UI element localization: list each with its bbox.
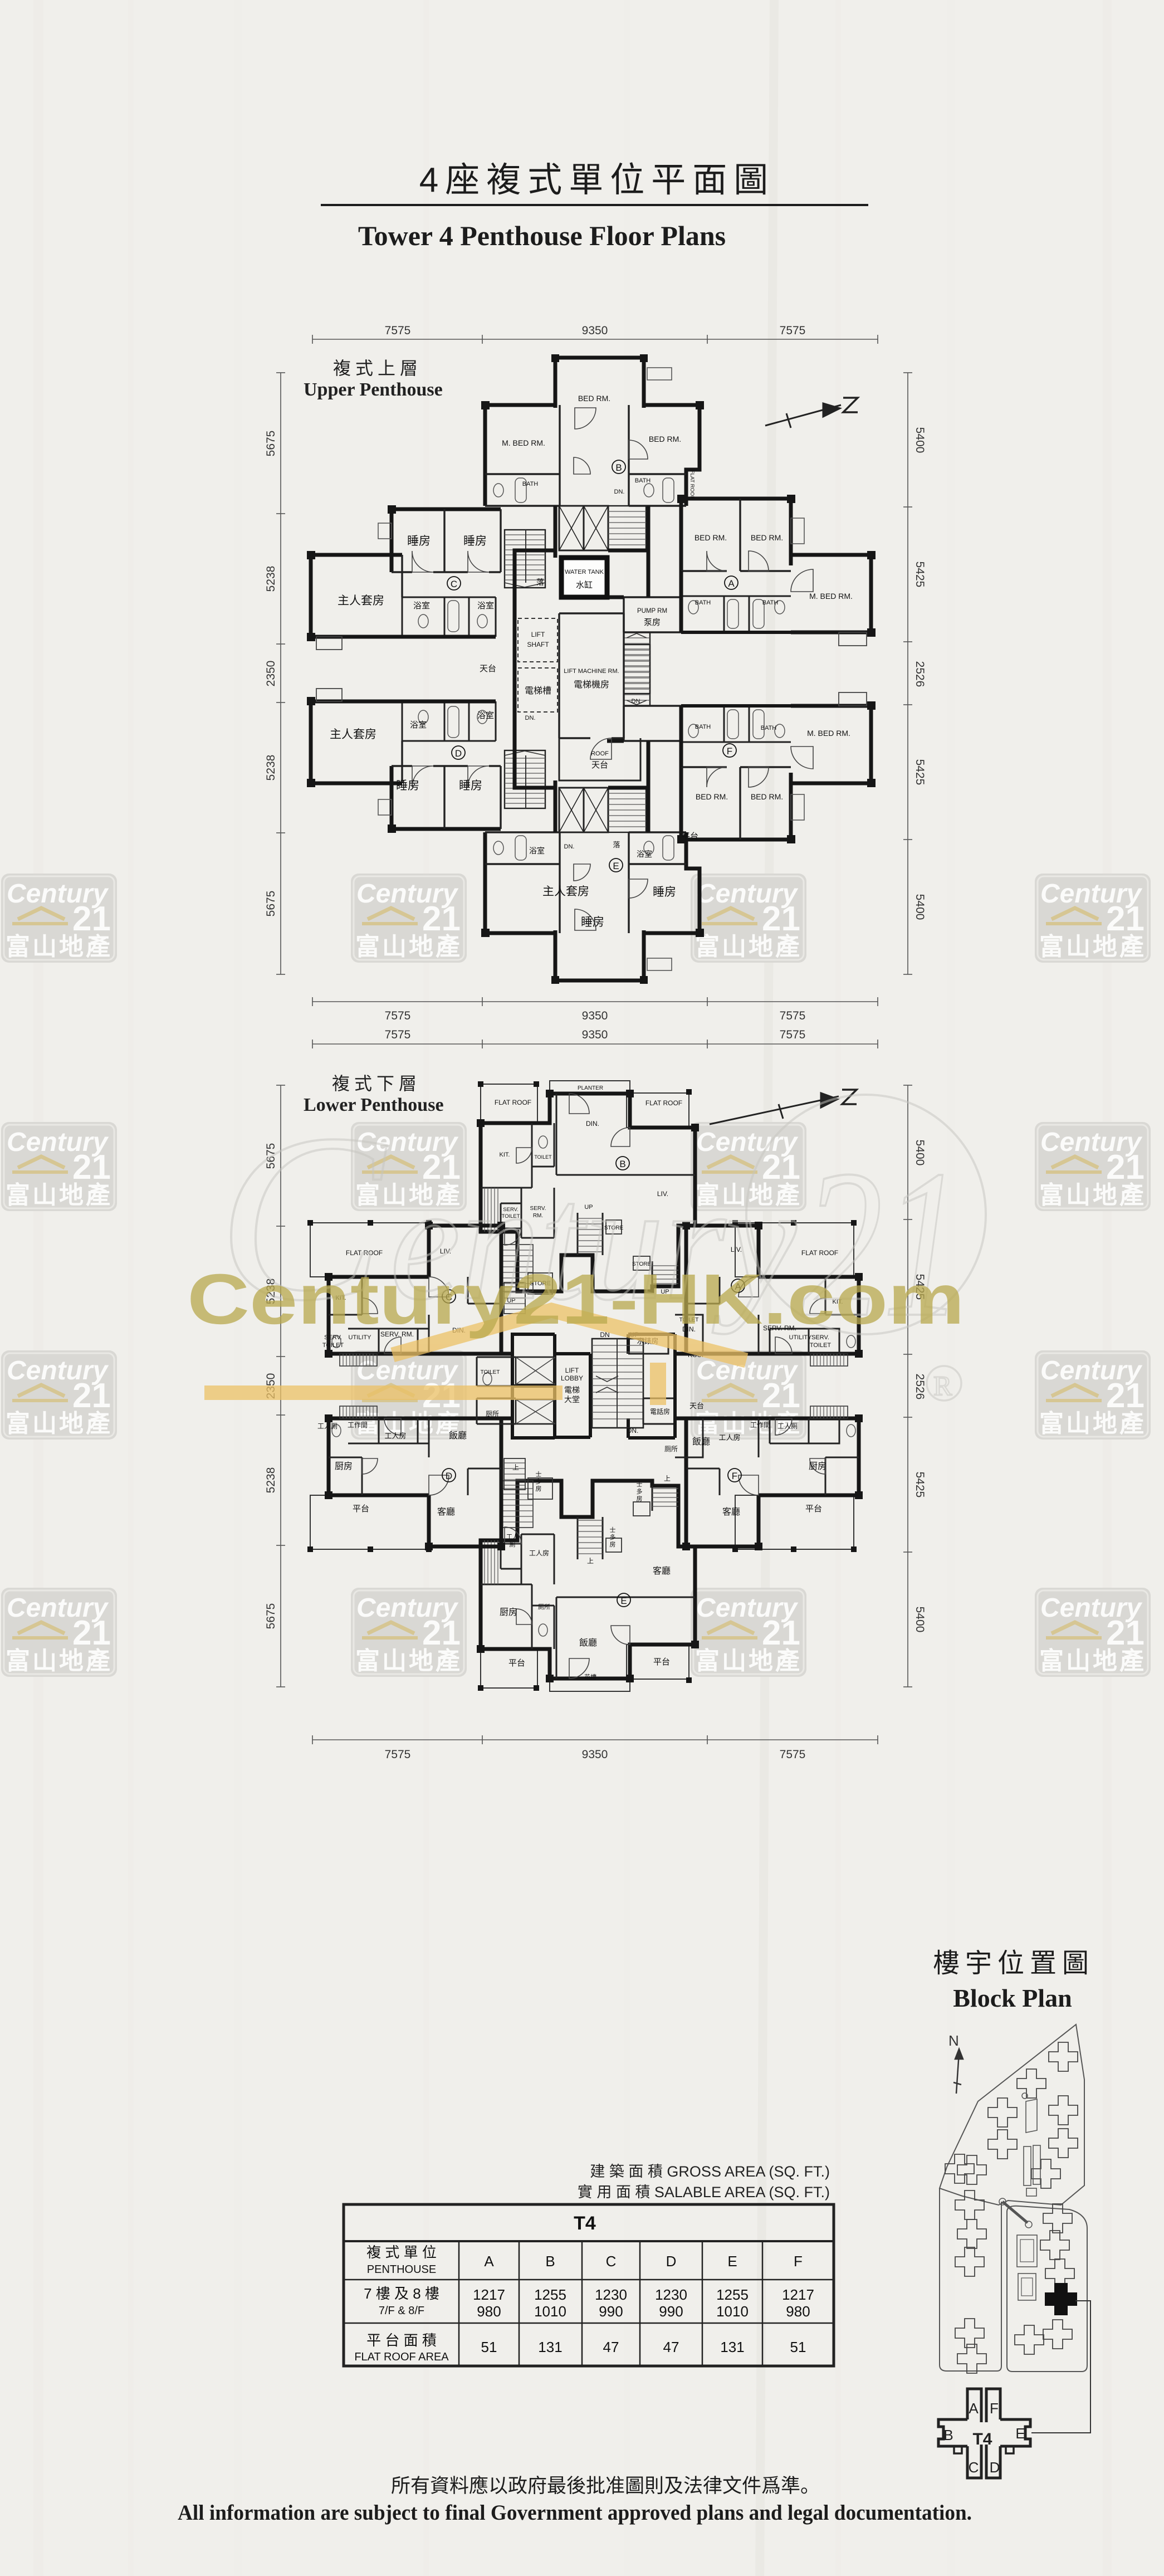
svg-text:FLAT ROOF AREA: FLAT ROOF AREA [354, 2351, 449, 2363]
svg-text:房: 房 [637, 1495, 643, 1502]
svg-text:1010: 1010 [716, 2303, 749, 2320]
svg-text:F: F [794, 2253, 803, 2270]
svg-text:實 用 面 積 SALABLE AREA (SQ. FT.: 實 用 面 積 SALABLE AREA (SQ. FT.) [578, 2184, 830, 2201]
svg-text:浴室: 浴室 [637, 850, 652, 858]
svg-text:BED RM.: BED RM. [696, 792, 728, 801]
svg-text:7575: 7575 [780, 1009, 806, 1022]
svg-text:E: E [1015, 2425, 1025, 2442]
svg-text:工人房: 工人房 [529, 1549, 549, 1557]
svg-text:Century21-HK.com: Century21-HK.com [187, 1260, 965, 1339]
svg-text:厨所: 厨所 [486, 1410, 499, 1418]
svg-text:7575: 7575 [780, 1028, 806, 1041]
svg-text:泵房: 泵房 [644, 618, 661, 627]
svg-text:Upper Penthouse: Upper Penthouse [304, 379, 443, 400]
svg-text:9350: 9350 [582, 1748, 608, 1761]
svg-text:Tower 4 Penthouse Floor Plans: Tower 4 Penthouse Floor Plans [358, 220, 726, 251]
svg-text:2526: 2526 [913, 1374, 926, 1400]
svg-text:F: F [990, 2400, 999, 2417]
svg-text:7575: 7575 [385, 324, 411, 337]
svg-text:飯廳: 飯廳 [579, 1637, 597, 1648]
svg-text:房: 房 [536, 1485, 542, 1492]
svg-text:平台: 平台 [353, 1504, 369, 1514]
svg-text:所有資料應以政府最後批准圖則及法律文件爲準。: 所有資料應以政府最後批准圖則及法律文件爲準。 [391, 2475, 820, 2497]
svg-text:47: 47 [603, 2339, 619, 2355]
svg-text:7575: 7575 [385, 1009, 411, 1022]
svg-text:電梯機房: 電梯機房 [574, 680, 609, 690]
svg-text:E: E [613, 861, 619, 871]
svg-text:大堂: 大堂 [564, 1395, 580, 1404]
svg-text:ROOF: ROOF [591, 750, 609, 757]
svg-text:天台: 天台 [591, 760, 608, 770]
svg-text:DN.: DN. [525, 715, 536, 721]
svg-text:浴室: 浴室 [413, 601, 430, 611]
svg-text:浴室: 浴室 [477, 601, 494, 611]
svg-text:多: 多 [637, 1487, 643, 1495]
svg-text:5238: 5238 [265, 566, 277, 592]
svg-text:FLAT ROOF: FLAT ROOF [645, 1099, 682, 1107]
svg-text:平台: 平台 [508, 1658, 525, 1668]
svg-text:990: 990 [599, 2303, 623, 2320]
svg-text:5400: 5400 [913, 894, 926, 920]
svg-text:上: 上 [664, 1475, 671, 1482]
svg-text:厨房: 厨房 [809, 1461, 826, 1471]
svg-text:C: C [969, 2459, 979, 2476]
svg-text:PENTHOUSE: PENTHOUSE [367, 2263, 436, 2276]
svg-text:複 式 單 位: 複 式 單 位 [366, 2244, 437, 2261]
svg-text:BED RM.: BED RM. [578, 394, 610, 403]
svg-text:7 樓 及 8 樓: 7 樓 及 8 樓 [364, 2285, 439, 2302]
svg-text:7575: 7575 [780, 324, 806, 337]
svg-text:工作間: 工作間 [348, 1421, 368, 1429]
svg-text:FLAT ROOF: FLAT ROOF [495, 1099, 531, 1106]
svg-text:BATH: BATH [635, 477, 651, 484]
svg-text:2350: 2350 [265, 661, 277, 687]
svg-text:客廳: 客廳 [653, 1565, 671, 1576]
svg-text:複式上層: 複式上層 [333, 358, 422, 378]
svg-text:落: 落 [536, 578, 544, 587]
svg-text:厨房: 厨房 [500, 1607, 517, 1617]
svg-text:D: D [666, 2253, 677, 2270]
svg-text:WATER TANK: WATER TANK [565, 569, 604, 575]
svg-text:E: E [727, 2253, 737, 2270]
svg-text:2526: 2526 [913, 661, 926, 687]
svg-text:1255: 1255 [534, 2286, 566, 2303]
svg-text:131: 131 [720, 2339, 744, 2355]
svg-text:天台: 天台 [689, 1402, 704, 1410]
svg-text:落: 落 [613, 841, 620, 849]
svg-text:5425: 5425 [913, 759, 926, 786]
svg-text:D: D [990, 2459, 1000, 2476]
svg-text:7/F & 8/F: 7/F & 8/F [379, 2305, 424, 2317]
svg-text:DIN.: DIN. [586, 1120, 599, 1128]
svg-text:客廳: 客廳 [437, 1506, 455, 1517]
svg-text:工人房: 工人房 [384, 1432, 406, 1440]
svg-text:睡房: 睡房 [407, 535, 431, 548]
svg-text:PLANTER: PLANTER [578, 1085, 603, 1091]
svg-text:電話房: 電話房 [650, 1407, 670, 1416]
svg-text:M. BED RM.: M. BED RM. [809, 592, 853, 601]
svg-text:M. BED RM.: M. BED RM. [807, 729, 850, 738]
svg-text:51: 51 [481, 2339, 497, 2355]
svg-text:水缸: 水缸 [576, 580, 593, 590]
svg-text:士: 士 [536, 1471, 542, 1478]
svg-text:睡房: 睡房 [463, 535, 487, 548]
svg-text:T4: T4 [574, 2213, 596, 2234]
svg-text:C: C [451, 579, 457, 589]
svg-text:9350: 9350 [582, 1009, 608, 1022]
svg-text:平台: 平台 [805, 1504, 822, 1514]
svg-text:5425: 5425 [913, 1472, 926, 1498]
svg-text:主人套房: 主人套房 [542, 885, 589, 898]
svg-text:DN.: DN. [627, 1427, 639, 1435]
svg-text:SHAFT: SHAFT [527, 641, 549, 648]
svg-text:5238: 5238 [265, 1467, 277, 1494]
svg-text:5400: 5400 [913, 427, 926, 453]
svg-text:9350: 9350 [582, 1028, 608, 1041]
svg-text:樓宇位置圖: 樓宇位置圖 [933, 1949, 1094, 1978]
svg-text:5425: 5425 [913, 562, 926, 588]
svg-text:浴室: 浴室 [529, 846, 545, 855]
svg-text:5675: 5675 [265, 1603, 277, 1629]
svg-text:T4: T4 [972, 2430, 992, 2448]
svg-text:F: F [727, 746, 732, 757]
svg-text:建 築 面 積 GROSS AREA (SQ. FT.): 建 築 面 積 GROSS AREA (SQ. FT.) [590, 2163, 830, 2180]
svg-text:睡房: 睡房 [459, 779, 482, 792]
svg-text:LIFT MACHINE RM.: LIFT MACHINE RM. [564, 668, 619, 675]
svg-text:4座複式單位平面圖: 4座複式單位平面圖 [419, 161, 775, 199]
svg-text:多: 多 [610, 1533, 616, 1541]
svg-text:工人房: 工人房 [718, 1433, 740, 1442]
svg-text:990: 990 [659, 2303, 683, 2320]
svg-text:1255: 1255 [716, 2286, 749, 2303]
svg-text:47: 47 [663, 2339, 679, 2355]
svg-text:BATH: BATH [695, 724, 711, 730]
svg-text:A: A [728, 578, 735, 589]
svg-text:工人厠: 工人厠 [317, 1422, 338, 1430]
svg-text:5675: 5675 [265, 431, 277, 457]
svg-text:士: 士 [637, 1481, 643, 1488]
svg-text:浴室: 浴室 [477, 711, 494, 720]
svg-text:BED RM.: BED RM. [751, 792, 783, 801]
svg-text:B: B [615, 462, 622, 473]
svg-text:睡房: 睡房 [653, 886, 676, 899]
svg-text:B: B [943, 2427, 953, 2443]
svg-text:電梯: 電梯 [564, 1385, 580, 1394]
svg-text:BATH: BATH [522, 481, 539, 487]
svg-text:5238: 5238 [265, 755, 277, 781]
svg-text:工人厠: 工人厠 [777, 1422, 798, 1430]
svg-text:PUMP RM: PUMP RM [637, 608, 667, 614]
svg-text:Block Plan: Block Plan [953, 1984, 1072, 2012]
svg-text:D: D [446, 1471, 452, 1481]
svg-text:BATH: BATH [762, 599, 779, 606]
svg-text:平台: 平台 [682, 832, 698, 841]
svg-text:天台: 天台 [480, 664, 496, 674]
svg-text:DN.: DN. [632, 698, 642, 705]
svg-text:花槽: 花槽 [584, 1674, 596, 1681]
svg-text:浴室: 浴室 [410, 720, 427, 730]
svg-text:BATH: BATH [695, 599, 711, 606]
svg-text:7575: 7575 [780, 1748, 806, 1761]
svg-text:A: A [969, 2400, 979, 2417]
svg-text:工作間: 工作間 [750, 1421, 770, 1429]
svg-text:R: R [933, 1370, 952, 1401]
svg-text:1230: 1230 [655, 2286, 687, 2303]
svg-text:主人套房: 主人套房 [330, 728, 376, 741]
svg-text:LIFT: LIFT [565, 1367, 579, 1374]
svg-text:平台: 平台 [653, 1657, 670, 1667]
svg-text:睡房: 睡房 [581, 916, 604, 929]
svg-text:9350: 9350 [582, 324, 608, 337]
svg-text:BATH: BATH [761, 725, 777, 731]
svg-text:電梯槽: 電梯槽 [525, 686, 551, 696]
svg-text:LOBBY: LOBBY [561, 1374, 583, 1382]
svg-text:7575: 7575 [385, 1028, 411, 1041]
svg-text:平 台 面 積: 平 台 面 積 [366, 2332, 437, 2349]
svg-text:5675: 5675 [265, 891, 277, 917]
svg-text:B: B [545, 2253, 555, 2270]
svg-text:士: 士 [610, 1526, 616, 1534]
svg-text:D: D [455, 748, 462, 759]
svg-text:1217: 1217 [473, 2286, 505, 2303]
svg-text:房: 房 [610, 1541, 616, 1548]
svg-text:BED RM.: BED RM. [695, 533, 727, 542]
svg-text:飯廳: 飯廳 [449, 1430, 467, 1441]
svg-text:LIFT: LIFT [531, 631, 545, 638]
svg-text:C: C [606, 2253, 617, 2270]
svg-text:980: 980 [477, 2303, 501, 2320]
svg-text:1010: 1010 [534, 2303, 566, 2320]
svg-text:睡房: 睡房 [396, 779, 419, 792]
svg-text:厠所: 厠所 [538, 1603, 550, 1611]
svg-text:多: 多 [536, 1477, 542, 1485]
svg-text:厕所: 厕所 [664, 1445, 678, 1453]
svg-text:上: 上 [512, 1463, 519, 1471]
svg-text:BED RM.: BED RM. [649, 435, 681, 443]
svg-text:BED RM.: BED RM. [751, 533, 783, 542]
svg-text:厠: 厠 [510, 1541, 516, 1548]
svg-text:工人: 工人 [506, 1533, 519, 1540]
svg-text:M. BED RM.: M. BED RM. [502, 438, 545, 447]
svg-text:A: A [484, 2253, 494, 2270]
svg-text:E: E [620, 1596, 627, 1606]
svg-text:F: F [732, 1471, 737, 1481]
svg-text:客廳: 客廳 [722, 1506, 740, 1517]
svg-text:7575: 7575 [385, 1748, 411, 1761]
svg-text:1230: 1230 [595, 2286, 627, 2303]
svg-text:N: N [948, 2032, 959, 2049]
svg-text:5400: 5400 [913, 1607, 926, 1633]
svg-text:131: 131 [538, 2339, 562, 2355]
svg-text:All information are subject to: All information are subject to final Gov… [178, 2501, 972, 2525]
svg-text:980: 980 [786, 2303, 810, 2320]
svg-text:DN.: DN. [564, 843, 575, 850]
svg-text:厨房: 厨房 [335, 1461, 353, 1471]
svg-text:主人套房: 主人套房 [338, 594, 384, 607]
svg-text:FLAT ROOF: FLAT ROOF [689, 470, 695, 500]
svg-text:51: 51 [790, 2339, 806, 2355]
svg-text:1217: 1217 [782, 2286, 814, 2303]
svg-text:飯廳: 飯廳 [692, 1436, 710, 1447]
svg-text:TOILET: TOILET [481, 1369, 500, 1375]
svg-text:上: 上 [587, 1557, 594, 1565]
svg-text:DN.: DN. [614, 489, 625, 495]
